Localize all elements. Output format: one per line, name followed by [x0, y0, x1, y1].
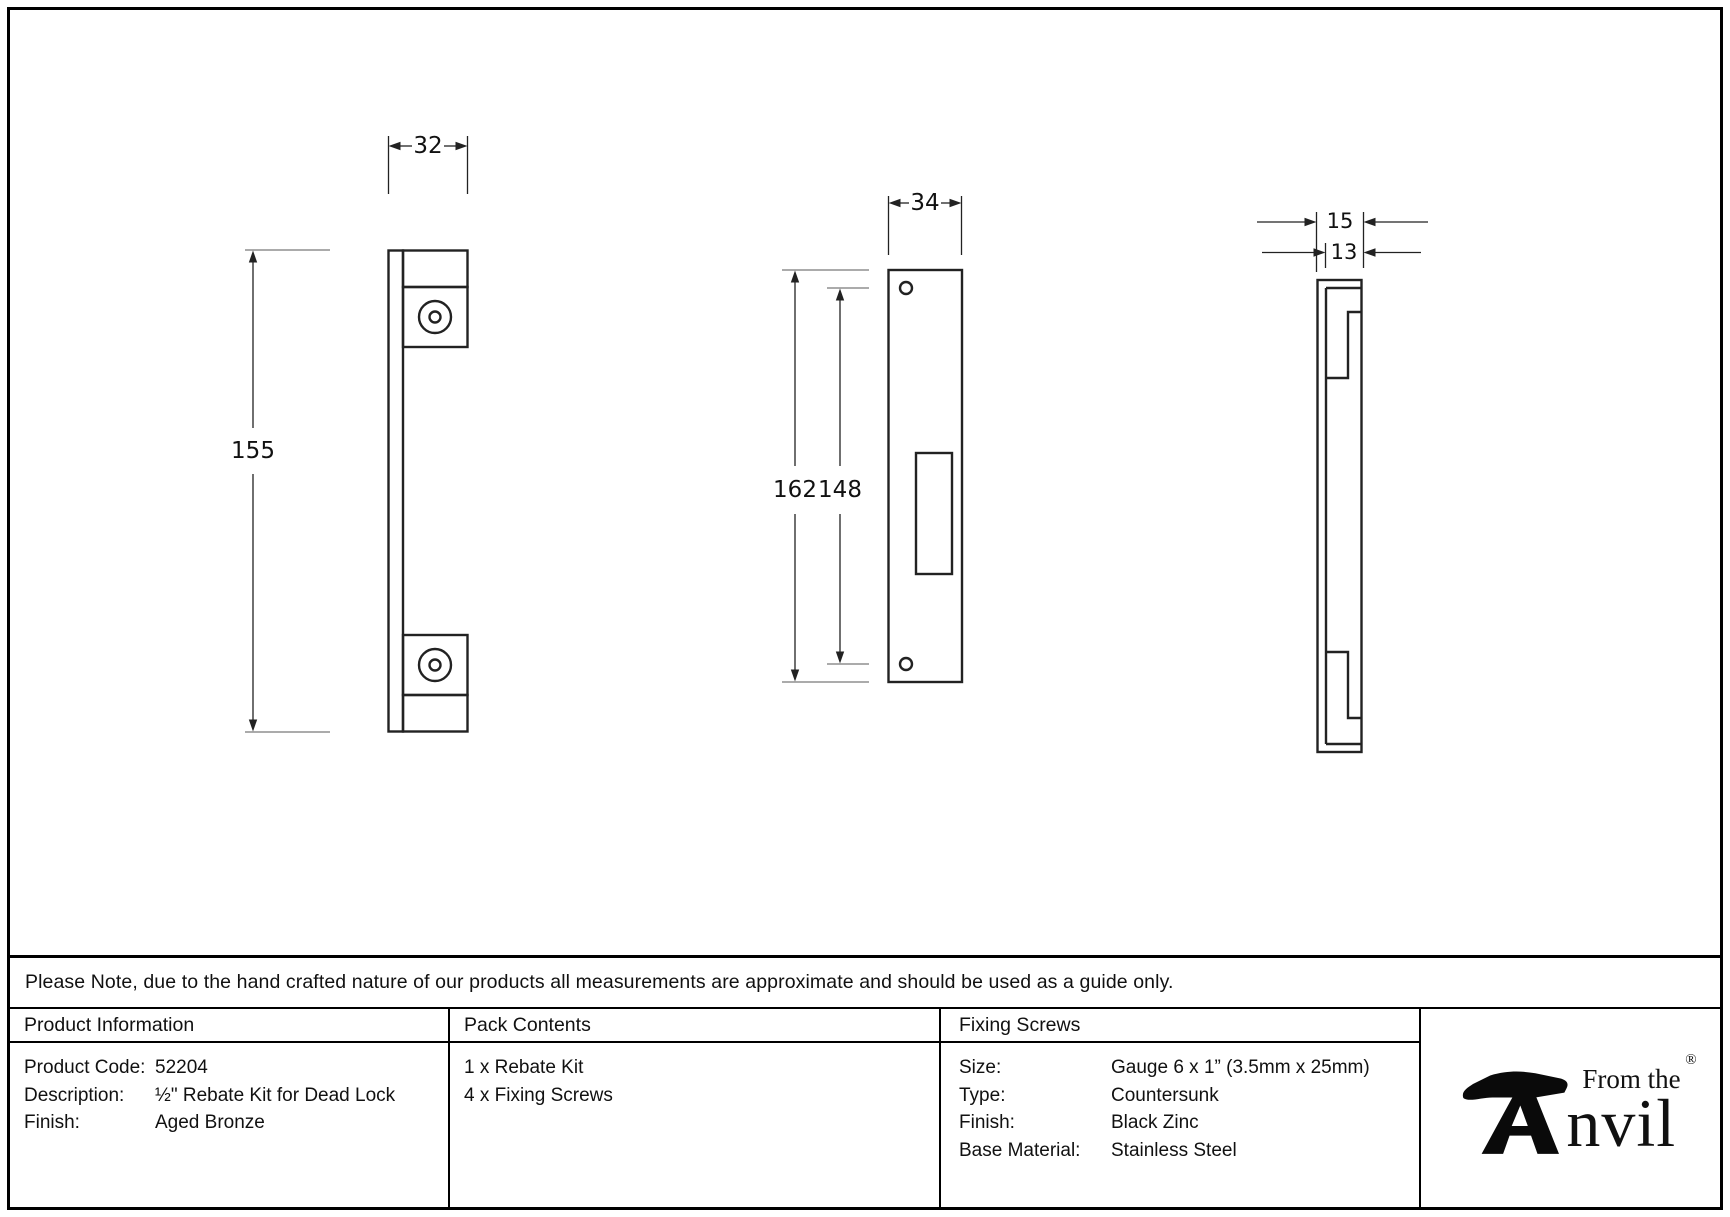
pack-contents-header: Pack Contents: [450, 1009, 939, 1043]
finish-label: Finish:: [24, 1109, 155, 1137]
bracket-side-view: 32 155: [231, 133, 467, 732]
screw-finish-label: Finish:: [959, 1109, 1111, 1137]
product-code-row: Product Code: 52204: [24, 1054, 448, 1082]
dim-label-155: 155: [231, 438, 275, 464]
faceplate-outline: [889, 270, 963, 682]
screw-size-value: Gauge 6 x 1” (3.5mm x 25mm): [1111, 1054, 1370, 1082]
measurement-note-text: Please Note, due to the hand crafted nat…: [25, 971, 1173, 994]
dim-label-15: 15: [1327, 209, 1354, 233]
screw-material-row: Base Material: Stainless Steel: [959, 1137, 1419, 1165]
faceplate-hole-top: [900, 282, 912, 294]
screw-type-row: Type: Countersunk: [959, 1082, 1419, 1110]
screw-material-value: Stainless Steel: [1111, 1137, 1237, 1165]
fixing-screws-header: Fixing Screws: [941, 1009, 1419, 1043]
description-label: Description:: [24, 1082, 155, 1110]
finish-value: Aged Bronze: [155, 1109, 265, 1137]
finish-row: Finish: Aged Bronze: [24, 1109, 448, 1137]
pack-contents-panel: Pack Contents 1 x Rebate Kit 4 x Fixing …: [450, 1009, 941, 1207]
product-information-panel: Product Information Product Code: 52204 …: [10, 1009, 450, 1207]
dim-width-32: 32: [389, 133, 468, 194]
screw-type-value: Countersunk: [1111, 1082, 1219, 1110]
screw-size-label: Size:: [959, 1054, 1111, 1082]
fixing-screws-panel: Fixing Screws Size: Gauge 6 x 1” (3.5mm …: [941, 1009, 1421, 1207]
pack-item-rebate-kit: 1 x Rebate Kit: [464, 1054, 939, 1082]
rebate-step-bottom: [1326, 652, 1361, 718]
profile-side-view: 15 13: [1257, 209, 1428, 752]
description-row: Description: ½" Rebate Kit for Dead Lock: [24, 1082, 448, 1110]
logo-wordmark: nvil: [1566, 1095, 1680, 1152]
rebate-step-top: [1326, 312, 1361, 378]
product-spec-sheet: 32 155: [0, 0, 1730, 1217]
info-table: Product Information Product Code: 52204 …: [10, 1007, 1720, 1207]
faceplate-front-view: 34 162: [773, 190, 962, 682]
brand-panel: From the nvil ®: [1421, 1009, 1720, 1207]
faceplate-hole-bottom: [900, 658, 912, 670]
from-the-anvil-logo: From the nvil ®: [1460, 1061, 1680, 1155]
description-value: ½" Rebate Kit for Dead Lock: [155, 1082, 395, 1110]
bolt-cutout: [916, 453, 952, 574]
product-code-value: 52204: [155, 1054, 208, 1082]
dim-label-13: 13: [1331, 240, 1358, 264]
product-code-label: Product Code:: [24, 1054, 155, 1082]
screw-finish-value: Black Zinc: [1111, 1109, 1199, 1137]
technical-drawings: 32 155: [0, 0, 1730, 955]
dim-height-155: 155: [231, 250, 330, 732]
screw-hole-bottom: [419, 649, 451, 681]
screw-hole-top: [419, 301, 451, 333]
dim-width-34: 34: [889, 190, 962, 255]
dim-height-162: 162: [773, 270, 869, 682]
profile-outline: [1318, 280, 1362, 752]
dim-label-34: 34: [910, 190, 939, 216]
product-information-header: Product Information: [10, 1009, 448, 1043]
dim-label-32: 32: [413, 133, 442, 159]
screw-type-label: Type:: [959, 1082, 1111, 1110]
dim-inner-thickness-13: 13: [1262, 240, 1421, 268]
screw-material-label: Base Material:: [959, 1137, 1111, 1165]
pack-item-fixing-screws: 4 x Fixing Screws: [464, 1082, 939, 1110]
screw-finish-row: Finish: Black Zinc: [959, 1109, 1419, 1137]
measurement-note: Please Note, due to the hand crafted nat…: [10, 955, 1720, 1007]
dim-hole-spacing-148: 148: [818, 288, 869, 664]
bracket-outline: [389, 251, 468, 732]
dim-label-148: 148: [818, 477, 862, 503]
anvil-logo-icon: [1460, 1069, 1572, 1155]
registered-trademark-symbol: ®: [1685, 1052, 1696, 1069]
screw-size-row: Size: Gauge 6 x 1” (3.5mm x 25mm): [959, 1054, 1419, 1082]
dim-label-162: 162: [773, 477, 817, 503]
